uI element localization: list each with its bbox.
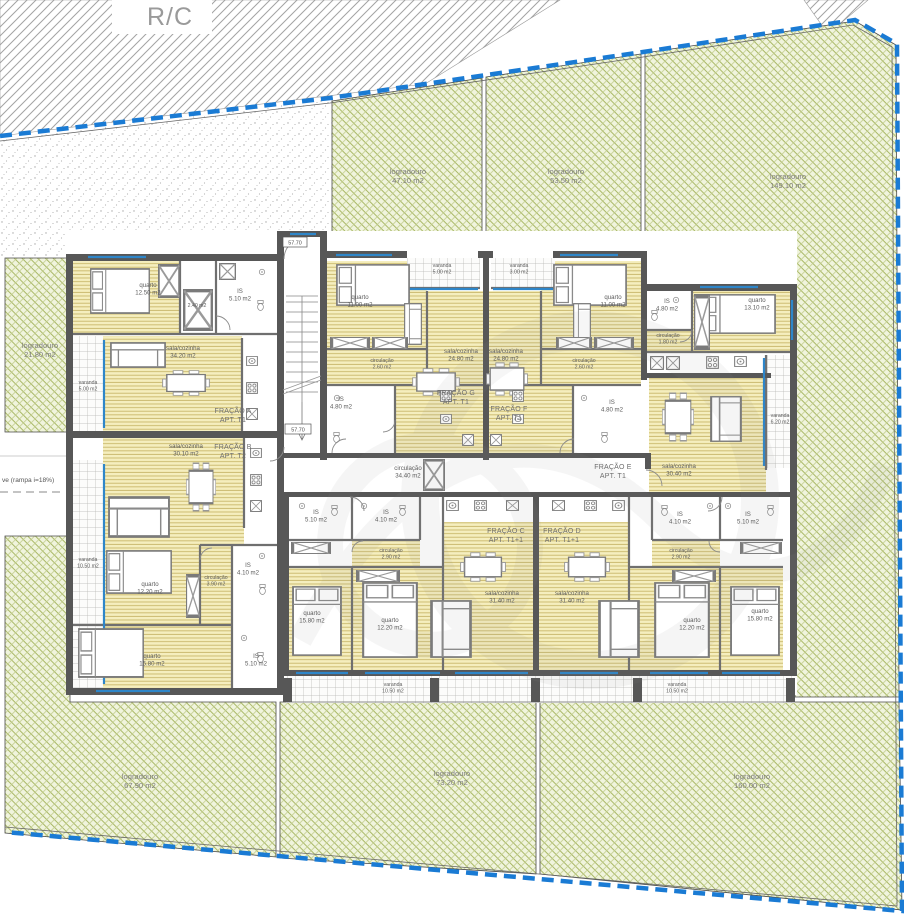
fraction-label: FRAÇÃO E [594, 462, 632, 471]
dining-table-icon [163, 371, 210, 396]
level-mark: 57.70 [288, 241, 302, 247]
room-area: 12.50 m2 [135, 290, 161, 297]
room-label: IS [313, 509, 319, 516]
floor-plan-drawing: R/C logradouro 47.10 m2 logradouro 53.50… [0, 0, 904, 916]
room-area: 10.50 m2 [382, 689, 404, 695]
room-label: circulação [656, 333, 679, 339]
room-label: varanda [668, 682, 687, 688]
washbasin-icon [259, 553, 264, 558]
stove-icon [247, 383, 258, 394]
room-area: 2.90 m2 [382, 555, 401, 561]
stove-icon [475, 501, 487, 511]
toilet-icon [258, 300, 264, 310]
room-area: 12.20 m2 [137, 589, 163, 596]
room-area: 31.40 m2 [559, 598, 585, 605]
room-label: circulação [379, 548, 402, 554]
dining-table-icon [461, 553, 506, 582]
kitchen-sink-icon [247, 357, 258, 366]
room-label: sala/cozinha [166, 345, 200, 352]
fraction-label: FRAÇÃO A [215, 406, 252, 415]
logradouro-area [280, 702, 536, 874]
garage-ramp [0, 456, 66, 492]
logradouro-area: 47.10 m2 [392, 176, 424, 185]
room-label: quarto [143, 653, 161, 660]
stove-icon [585, 501, 597, 511]
room-area: 2.60 m2 [575, 365, 594, 371]
room-area: 15.80 m2 [299, 618, 325, 625]
room-label: IS [237, 288, 243, 295]
room-label: quarto [381, 617, 399, 624]
washbasin-icon [259, 269, 264, 274]
room-label: quarto [683, 617, 701, 624]
room-label: varanda [433, 263, 452, 269]
washbasin-icon [299, 503, 304, 508]
room-label: circulação [669, 548, 692, 554]
room-area: 3.90 m2 [207, 582, 226, 588]
room-label: IS [338, 396, 344, 403]
room-area: 4.10 m2 [237, 570, 260, 577]
room-label: sala/cozinha [489, 348, 523, 355]
room-label: sala/cozinha [555, 590, 589, 597]
room-area: 10.50 m2 [77, 564, 99, 570]
wardrobe-icon [674, 570, 714, 581]
wardrobe-icon [184, 291, 212, 330]
room-area: 15.80 m2 [139, 661, 165, 668]
fridge-icon [250, 500, 261, 511]
wardrobe-icon [187, 576, 200, 616]
room-label: circulação [572, 358, 595, 364]
room-area: 5.00 m2 [79, 387, 98, 393]
kitchen-sink-icon [447, 501, 459, 511]
room-area: 5.10 m2 [245, 661, 268, 668]
shower-icon [220, 264, 236, 280]
room-area: 4.10 m2 [375, 517, 398, 524]
page-title: R/C [147, 3, 193, 31]
washbasin-icon [673, 297, 678, 302]
room-area: 11.00 m2 [601, 302, 627, 309]
wardrobe-icon [358, 570, 398, 581]
room-area: 2.40 m2 [188, 303, 207, 309]
fraction-label: FRAÇÃO B [214, 442, 252, 451]
room-area: 4.80 m2 [330, 404, 353, 411]
room-label: IS [609, 399, 615, 406]
room-area: 4.80 m2 [601, 407, 624, 414]
logradouro-area: 73.20 m2 [436, 778, 468, 787]
fraction-apt: APT. T1 [600, 473, 626, 480]
room-label: IS [245, 562, 251, 569]
room-area: 2.90 m2 [672, 555, 691, 561]
kitchen-sink-icon [251, 449, 262, 458]
floor-plan-page: R/C logradouro 47.10 m2 logradouro 53.50… [0, 0, 904, 916]
dining-table-icon [565, 553, 610, 582]
room-label: varanda [771, 413, 790, 419]
room-area: 2.60 m2 [373, 365, 392, 371]
toilet-icon [260, 584, 266, 594]
logradouro-area: 160.00 m2 [734, 781, 770, 790]
room-area: 34.20 m2 [170, 353, 196, 360]
room-area: 5.10 m2 [229, 296, 252, 303]
fridge-icon [553, 500, 565, 510]
bed-icon [79, 629, 143, 677]
room-area: 4.10 m2 [669, 519, 692, 526]
room-area: 6.20 m2 [771, 420, 790, 426]
logradouro-area [486, 54, 641, 256]
washbasin-icon [241, 635, 246, 640]
room-area: 34.40 m2 [395, 473, 421, 480]
fraction-apt: APT. T1 [496, 415, 522, 422]
bed-icon [107, 551, 171, 593]
stove-icon [513, 391, 524, 402]
level-mark: 57.70 [291, 428, 305, 434]
logradouro-label: logradouro [770, 172, 806, 181]
fraction-label: FRAÇÃO F [491, 404, 528, 413]
room-label: quarto [751, 608, 769, 615]
room-label: IS [745, 511, 751, 518]
room-label: quarto [351, 294, 369, 301]
fraction-apt: APT. T1 [220, 417, 246, 424]
room-label: IS [677, 511, 683, 518]
room-label: circulação [204, 575, 227, 581]
room-label: circulação [394, 465, 422, 472]
fraction-apt: APT. T2 [220, 453, 246, 460]
room-label: sala/cozinha [444, 348, 478, 355]
room-area: 12.20 m2 [377, 625, 403, 632]
room-area: 11.00 m2 [348, 302, 374, 309]
room-label: sala/cozinha [662, 463, 696, 470]
fraction-label: FRAÇÃO D [543, 526, 581, 535]
room-area: 5.10 m2 [737, 519, 760, 526]
room-area: 24.80 m2 [448, 356, 474, 363]
room-label: quarto [139, 282, 157, 289]
logradouro-area: 21.80 m2 [24, 350, 56, 359]
logradouro-area: 67.90 m2 [124, 781, 156, 790]
washbasin-icon [707, 503, 712, 508]
couch-icon [111, 343, 165, 367]
room-label: varanda [384, 682, 403, 688]
room-area: 31.40 m2 [489, 598, 515, 605]
couch-icon [109, 498, 169, 537]
room-label: varanda [79, 380, 98, 386]
room-area: 10.50 m2 [666, 689, 688, 695]
bed-icon [337, 265, 409, 305]
room-area: 5.10 m2 [305, 517, 328, 524]
wardrobe-icon [373, 337, 406, 348]
room-label: quarto [141, 581, 159, 588]
logradouro-label: logradouro [434, 769, 470, 778]
logradouro-area: 149.10 m2 [770, 181, 806, 190]
toilet-icon [602, 432, 608, 442]
room-label: quarto [303, 610, 321, 617]
room-area: 30.40 m2 [666, 471, 692, 478]
fraction-apt: APT. T1+1 [489, 537, 524, 544]
wardrobe-icon [159, 265, 179, 296]
fridge-icon [490, 434, 501, 445]
logradouro-label: logradouro [390, 167, 426, 176]
room-area: 30.10 m2 [173, 451, 199, 458]
logradouro-label: logradouro [122, 772, 158, 781]
logradouro-area: 53.50 m2 [550, 176, 582, 185]
ramp-note: ve (rampa i=18%) [2, 477, 54, 484]
room-label: circulação [370, 358, 393, 364]
room-area: 3.00 m2 [510, 270, 529, 276]
room-label: IS [383, 509, 389, 516]
room-area: 13.10 m2 [744, 305, 770, 312]
logradouro-label: logradouro [734, 772, 770, 781]
room-label: quarto [604, 294, 622, 301]
dining-table-icon [186, 463, 215, 511]
room-area: 12.20 m2 [679, 625, 705, 632]
washbasin-icon [581, 395, 586, 400]
room-label: IS [664, 298, 670, 305]
logradouro-label: logradouro [22, 341, 58, 350]
room-label: varanda [510, 263, 529, 269]
room-label: sala/cozinha [169, 443, 203, 450]
wardrobe-icon [332, 337, 369, 348]
fraction-apt: APT. T1 [443, 399, 469, 406]
room-label: sala/cozinha [485, 590, 519, 597]
room-area: 1.80 m2 [659, 340, 678, 346]
fraction-apt: APT. T1+1 [545, 537, 580, 544]
fraction-label: FRAÇÃO C [487, 526, 525, 535]
kitchen-sink-icon [735, 357, 747, 367]
room-area: 4.80 m2 [656, 306, 679, 313]
logradouro-label: logradouro [548, 167, 584, 176]
stove-icon [251, 475, 262, 486]
wardrobe-icon [695, 296, 710, 348]
dining-table-icon [662, 393, 693, 441]
room-area: 15.80 m2 [747, 616, 773, 623]
room-label: quarto [748, 297, 766, 304]
washbasin-icon [725, 503, 730, 508]
room-label: IS [253, 653, 259, 660]
fraction-label: FRAÇÃO G [437, 388, 475, 397]
room-area: 5.00 m2 [433, 270, 452, 276]
room-area: 24.80 m2 [493, 356, 519, 363]
room-label: varanda [79, 557, 98, 563]
